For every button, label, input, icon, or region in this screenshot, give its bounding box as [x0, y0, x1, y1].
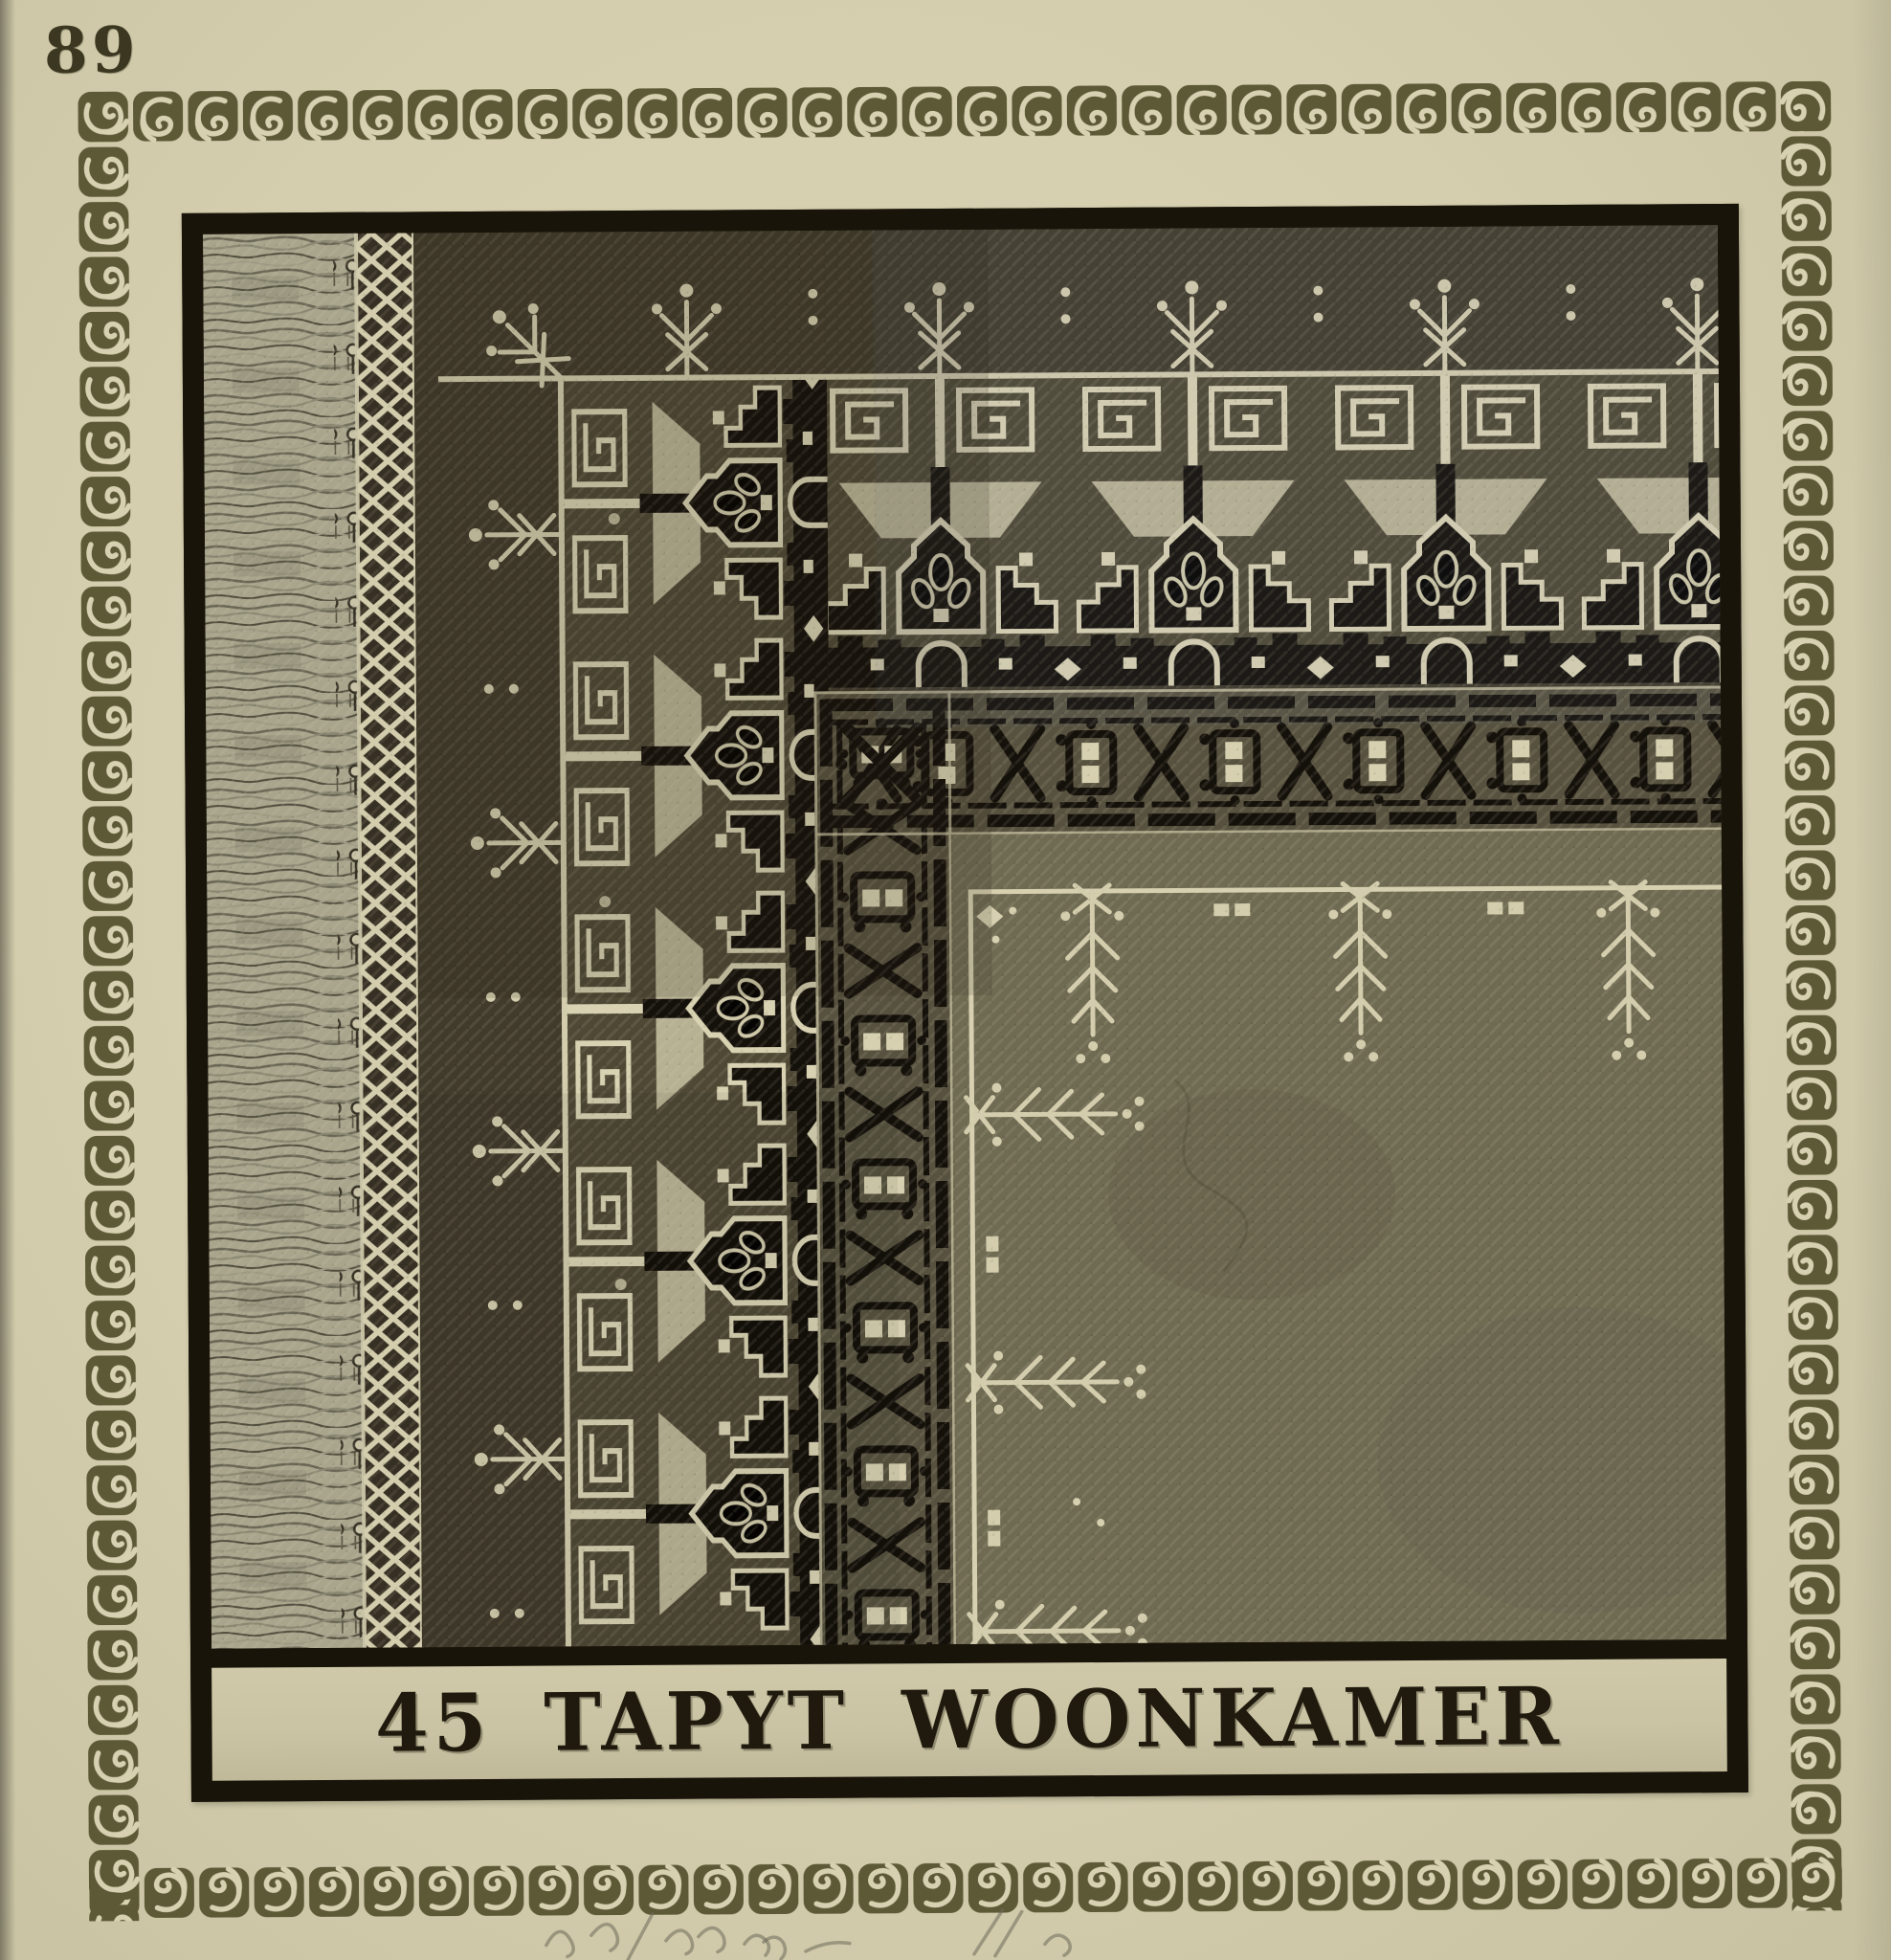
scan-content: 89 — [0, 0, 1891, 1960]
plate: 45 TAPYT WOONKAMER — [182, 204, 1748, 1802]
page-number: 89 — [44, 12, 140, 88]
caption-bar: 45 TAPYT WOONKAMER — [211, 1659, 1727, 1781]
book-page: 89 — [0, 0, 1891, 1960]
frame-left-band — [76, 89, 143, 1921]
caption-text: 45 TAPYT WOONKAMER — [375, 1669, 1564, 1770]
carpet-photo — [203, 225, 1726, 1649]
frame-right-band — [1778, 78, 1845, 1910]
frame-top-band — [76, 78, 1834, 145]
frame-bottom-band — [86, 1855, 1844, 1921]
